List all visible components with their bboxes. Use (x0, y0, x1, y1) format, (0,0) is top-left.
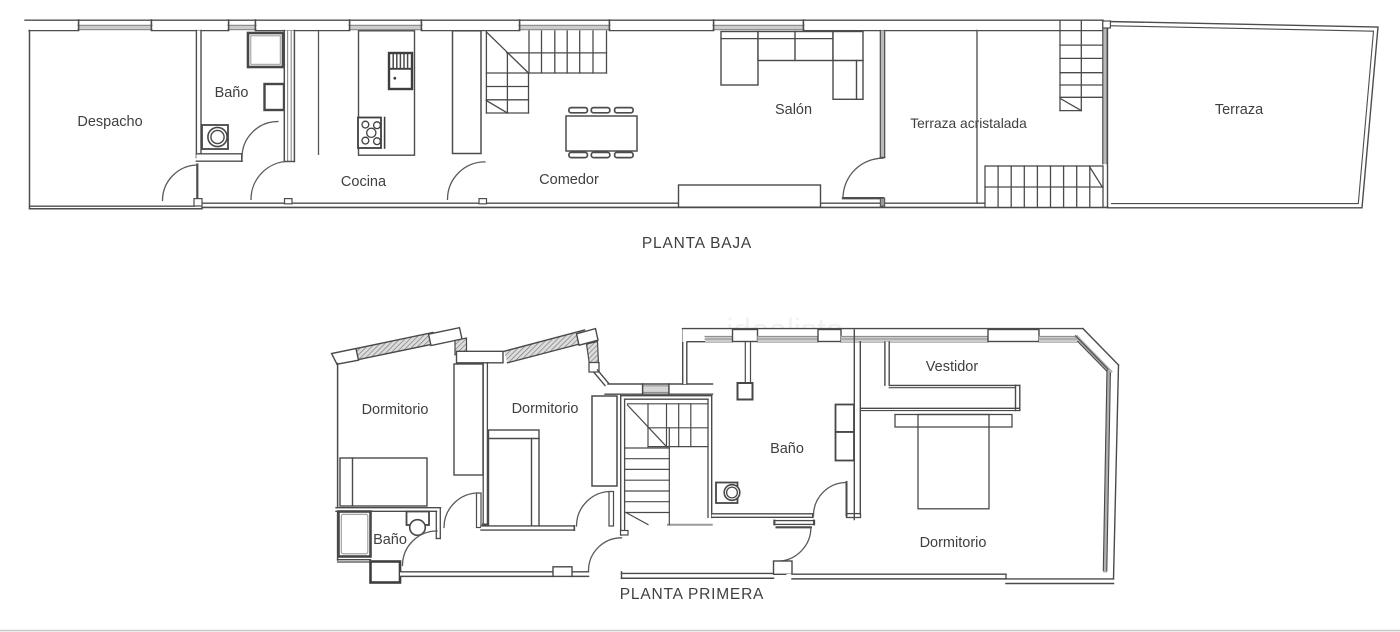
svg-text:Terraza acristalada: Terraza acristalada (910, 116, 1027, 131)
svg-text:PLANTA BAJA: PLANTA BAJA (642, 235, 752, 252)
svg-text:Dormitorio: Dormitorio (920, 535, 987, 551)
svg-text:Salón: Salón (775, 102, 812, 118)
svg-text:Cocina: Cocina (341, 174, 387, 190)
svg-text:PLANTA PRIMERA: PLANTA PRIMERA (620, 586, 764, 603)
svg-text:Terraza: Terraza (1215, 102, 1264, 118)
svg-text:Dormitorio: Dormitorio (362, 402, 429, 418)
svg-text:Dormitorio: Dormitorio (512, 401, 579, 417)
svg-text:Comedor: Comedor (539, 172, 599, 188)
svg-text:Baño: Baño (770, 441, 804, 457)
svg-text:Vestidor: Vestidor (926, 359, 979, 375)
svg-text:Baño: Baño (373, 532, 407, 548)
svg-text:Baño: Baño (215, 85, 249, 101)
svg-text:Despacho: Despacho (77, 114, 142, 130)
